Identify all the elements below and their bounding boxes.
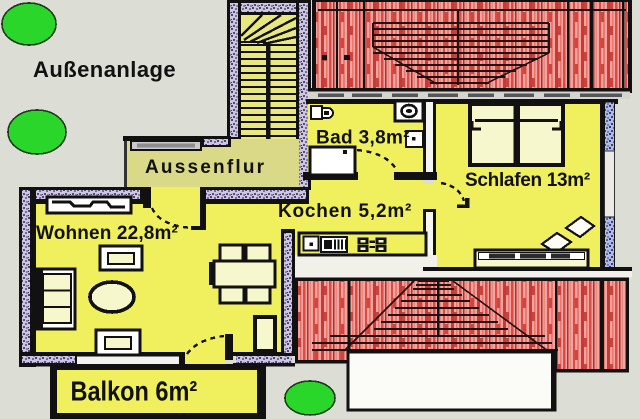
svg-text:Wohnen 22,8m²: Wohnen 22,8m²	[36, 223, 178, 244]
svg-text:Aussenflur: Aussenflur	[145, 157, 266, 178]
svg-text:Balkon 6m²: Balkon 6m²	[71, 377, 198, 407]
svg-text:Kochen 5,2m²: Kochen 5,2m²	[278, 201, 412, 222]
svg-text:Bad 3,8m²: Bad 3,8m²	[316, 128, 410, 149]
svg-text:Außenanlage: Außenanlage	[33, 57, 176, 82]
svg-text:Schlafen 13m²: Schlafen 13m²	[465, 170, 590, 191]
